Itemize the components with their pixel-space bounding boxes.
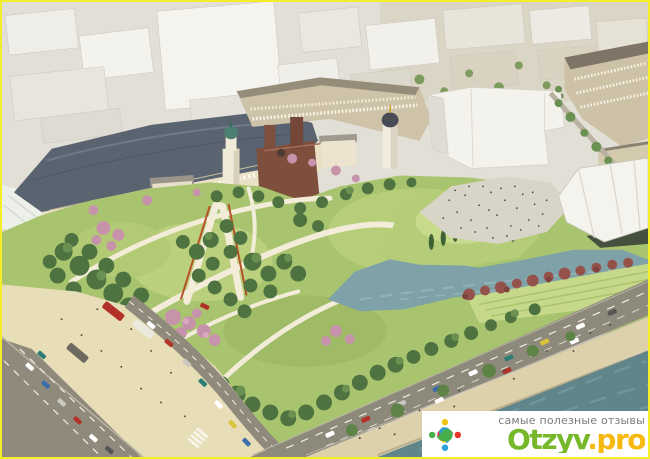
watermark-brand: Otzyv.pro — [507, 427, 645, 454]
brand-primary: Otzyv — [507, 423, 587, 454]
screenshot-frame: самые полезные отзывы Otzyv.pro — [0, 0, 650, 459]
monument — [277, 149, 285, 157]
concert-hall — [427, 87, 564, 168]
watermark-badge: самые полезные отзывы Otzyv.pro — [422, 411, 648, 457]
people-circle-logo-icon — [426, 414, 464, 454]
brand-suffix: .pro — [587, 423, 645, 454]
park-aerial-render — [2, 2, 648, 457]
